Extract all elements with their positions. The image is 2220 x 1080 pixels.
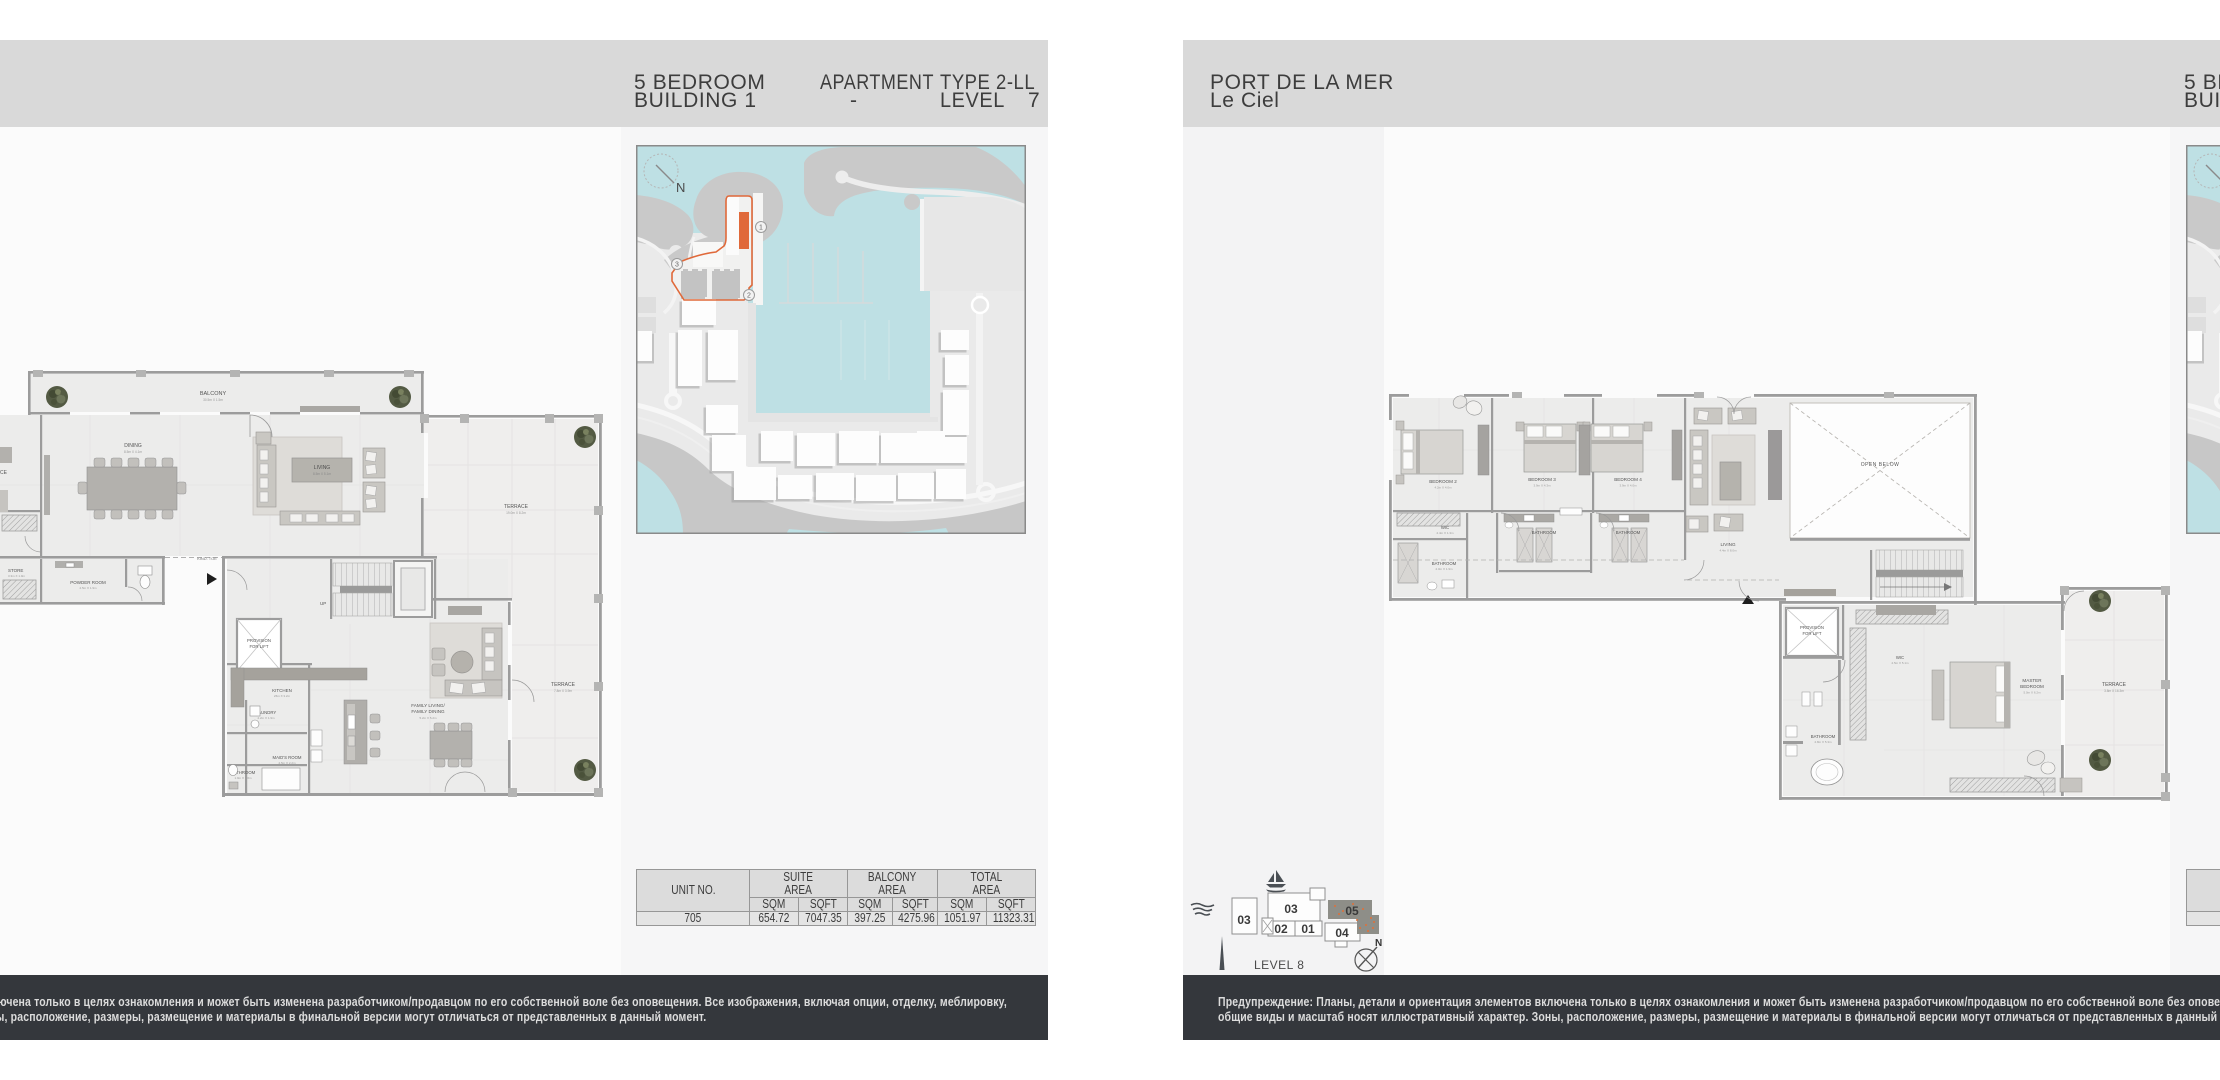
- svg-text:01: 01: [1301, 922, 1315, 936]
- svg-text:DINING: DINING: [124, 443, 142, 449]
- svg-text:2.0m X 1.9m: 2.0m X 1.9m: [1435, 567, 1453, 571]
- svg-text:03: 03: [1237, 913, 1251, 927]
- svg-text:3.9m X 4.3m: 3.9m X 4.3m: [1533, 484, 1551, 488]
- svg-text:BEDROOM 4: BEDROOM 4: [1614, 477, 1642, 482]
- svg-text:4.4m X 8.0m: 4.4m X 8.0m: [1719, 549, 1737, 553]
- svg-text:2.4m X 1.3m: 2.4m X 1.3m: [1436, 531, 1454, 535]
- svg-text:LEVEL 8: LEVEL 8: [1254, 958, 1304, 972]
- svg-text:KIND. TOE: KIND. TOE: [197, 556, 217, 561]
- svg-text:TERRACE: TERRACE: [504, 504, 529, 510]
- svg-text:WIC: WIC: [1896, 655, 1904, 660]
- svg-text:OPEN BELOW: OPEN BELOW: [1861, 462, 1900, 468]
- svg-text:BATHROOM: BATHROOM: [1532, 530, 1557, 535]
- svg-text:2: 2: [747, 293, 751, 300]
- svg-text:BATHROOM: BATHROOM: [1616, 530, 1641, 535]
- svg-text:FAMILY DINING: FAMILY DINING: [411, 709, 445, 714]
- svg-text:2.8m X 5.3m: 2.8m X 5.3m: [1814, 740, 1832, 744]
- svg-text:02: 02: [1274, 922, 1288, 936]
- svg-text:1.9m X 1.6m: 1.9m X 1.6m: [234, 776, 252, 780]
- svg-text:N: N: [676, 180, 685, 195]
- svg-text:7.8m X 3.9m: 7.8m X 3.9m: [554, 689, 572, 693]
- svg-text:BEDROOM 2: BEDROOM 2: [1429, 479, 1457, 484]
- svg-text:N: N: [1375, 938, 1382, 949]
- svg-text:03: 03: [1284, 902, 1298, 916]
- svg-text:05: 05: [1345, 904, 1359, 918]
- svg-text:3: 3: [675, 262, 679, 269]
- svg-text:19.0m X 8.2m: 19.0m X 8.2m: [506, 511, 526, 515]
- svg-text:3.9m X 4.0m: 3.9m X 4.0m: [1619, 484, 1637, 488]
- svg-text:8.5m X 4.1m: 8.5m X 4.1m: [124, 450, 142, 454]
- svg-text:8.5m X 5.1m: 8.5m X 5.1m: [313, 472, 331, 476]
- svg-text:UP: UP: [320, 601, 326, 606]
- svg-text:FOR LIFT: FOR LIFT: [1802, 631, 1821, 636]
- svg-text:5.2m X 5.2m: 5.2m X 5.2m: [419, 716, 437, 720]
- svg-text:LIVING: LIVING: [1720, 542, 1735, 547]
- svg-text:TERRACE: TERRACE: [2102, 682, 2127, 688]
- svg-text:BATHROOM: BATHROOM: [1811, 734, 1836, 739]
- svg-text:STORE: STORE: [8, 568, 23, 573]
- svg-text:2.2m X 1.9m: 2.2m X 1.9m: [257, 716, 275, 720]
- svg-text:3.3m X 1.9m: 3.3m X 1.9m: [8, 574, 26, 578]
- svg-text:4.2m X 4.0m: 4.2m X 4.0m: [1434, 486, 1452, 490]
- svg-text:3.8m X 16.3m: 3.8m X 16.3m: [2104, 689, 2124, 693]
- svg-text:BEDROOM 3: BEDROOM 3: [1528, 477, 1556, 482]
- svg-text:MAID'S ROOM: MAID'S ROOM: [273, 755, 302, 760]
- svg-text:FOR LIFT: FOR LIFT: [249, 644, 268, 649]
- svg-text:2.5m X 5.1m: 2.5m X 5.1m: [1891, 661, 1909, 665]
- svg-text:5.0m X 6.2m: 5.0m X 6.2m: [2023, 691, 2041, 695]
- svg-text:TERRACE: TERRACE: [551, 682, 576, 688]
- svg-text:CE: CE: [0, 470, 8, 476]
- svg-text:BALCONY: BALCONY: [200, 391, 227, 397]
- svg-text:WIC: WIC: [1441, 525, 1449, 530]
- svg-text:26m X 3.2m: 26m X 3.2m: [274, 694, 291, 698]
- svg-text:FAMILY LIVING/: FAMILY LIVING/: [411, 703, 445, 708]
- svg-text:PROVISION: PROVISION: [1800, 625, 1824, 630]
- svg-text:1: 1: [759, 225, 763, 232]
- svg-text:BATHROOM: BATHROOM: [1432, 561, 1457, 566]
- svg-text:30.5m X 1.5m: 30.5m X 1.5m: [203, 398, 223, 402]
- svg-text:POWDER ROOM: POWDER ROOM: [70, 580, 106, 585]
- svg-text:2.5m X 2.2m: 2.5m X 2.2m: [278, 761, 296, 765]
- svg-text:KITCHEN: KITCHEN: [272, 688, 292, 693]
- svg-text:PROVISION: PROVISION: [247, 638, 271, 643]
- svg-text:LIVING: LIVING: [314, 465, 331, 471]
- svg-text:MASTER: MASTER: [2022, 678, 2042, 683]
- svg-text:04: 04: [1335, 926, 1349, 940]
- svg-text:BEDROOM: BEDROOM: [2020, 684, 2044, 689]
- svg-text:2.5m X 1.9m: 2.5m X 1.9m: [79, 586, 97, 590]
